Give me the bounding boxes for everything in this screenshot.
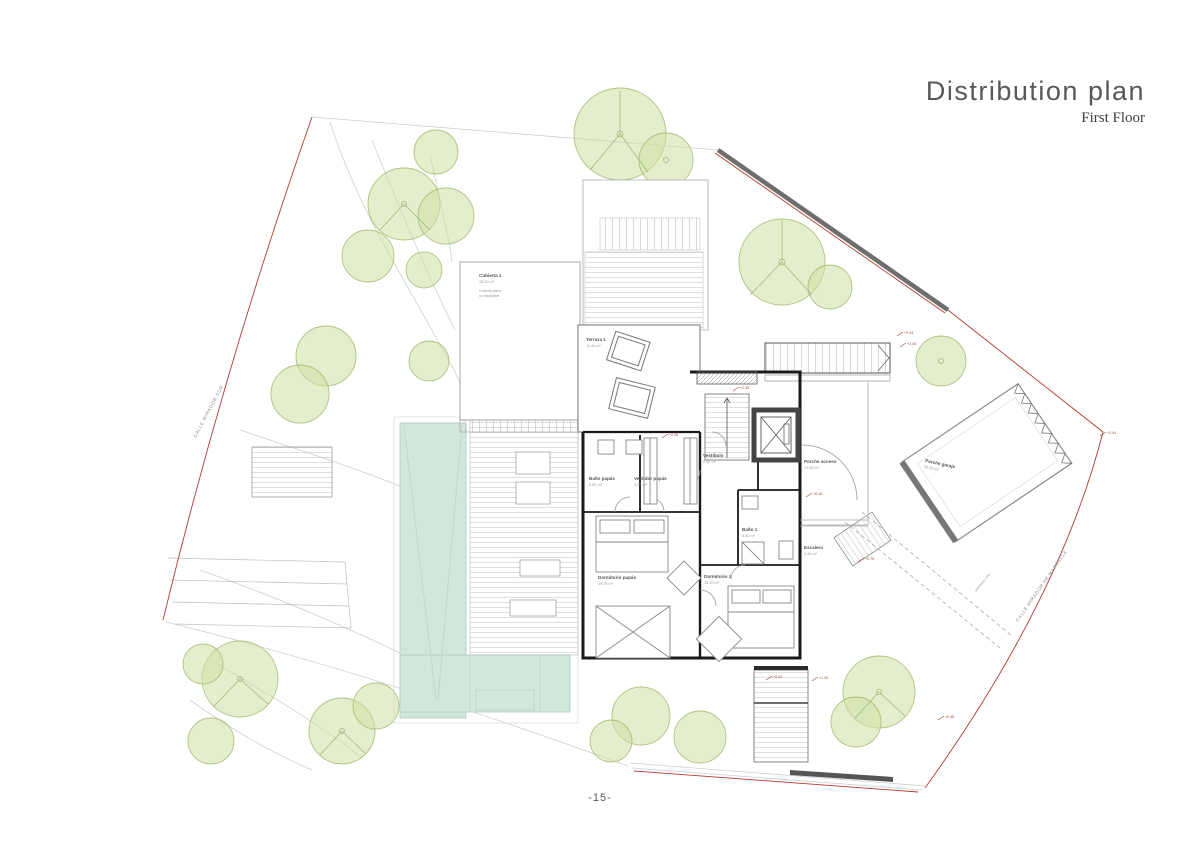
- level-marker: +2.44: [907, 342, 916, 346]
- room-area-cubierta: 45.20 m²: [479, 280, 495, 284]
- room-label-cubierta: Cubierta 1: [479, 273, 502, 278]
- room-area-dormitorio-papas: 19.75 m²: [598, 582, 614, 586]
- room-area-vestidor-papas: 4.30 m²: [634, 483, 648, 487]
- room-area-bano-1: 5.10 m²: [742, 534, 756, 538]
- floor-plan-drawing: +2.44 +2.44 +2.44 +2.35 +0.15 +2.44 +1.2…: [0, 0, 1200, 848]
- page-title: Distribution plan: [926, 76, 1145, 107]
- flat-roof-room: [460, 262, 580, 420]
- room-area-bano-papas: 6.85 m²: [589, 483, 603, 487]
- bottom-retaining-wall: [790, 770, 893, 782]
- level-marker: +2.35: [740, 386, 749, 390]
- room-label-dormitorio-1: Dormitorio 1: [704, 574, 732, 579]
- garage: [834, 384, 1072, 566]
- room-label-porche-acceso: Porche acceso: [804, 459, 837, 464]
- level-marker: +0.75: [865, 557, 874, 561]
- upper-terrace-block: [583, 180, 708, 330]
- left-terraces: [168, 558, 351, 628]
- level-marker: +0.15: [813, 492, 822, 496]
- interior-stairs: [705, 394, 749, 460]
- room-label-terraza-1: Terraza 1: [586, 337, 606, 342]
- room-area-vestibulo: 8.40 m²: [703, 460, 717, 464]
- level-marker: +2.35: [669, 433, 678, 437]
- page-number: -15-: [0, 792, 1200, 804]
- room-area-dormitorio-1: 15.20 m²: [704, 581, 720, 585]
- room-label-bano-1: Baño 1: [742, 527, 758, 532]
- level-marker: +1.20: [819, 676, 828, 680]
- room-area-escalera: 6.30 m²: [804, 552, 818, 556]
- exterior-stairs-bottom: [754, 666, 808, 762]
- slope-label: pendiente 16%: [974, 573, 992, 593]
- room-area-porche-acceso: 12.60 m²: [804, 466, 820, 470]
- room-label-dormitorio-papas: Dormitorio papás: [598, 575, 636, 580]
- lintel-hatch: [697, 372, 757, 384]
- room-label-escalera: Escalera: [804, 545, 823, 550]
- level-marker: +0.48: [945, 715, 954, 719]
- drawing-sheet: +2.44 +2.44 +2.44 +2.35 +0.15 +2.44 +1.2…: [0, 0, 1200, 848]
- left-exterior-stair: [252, 447, 332, 497]
- room-note-1: Cubierta plana: [479, 289, 501, 293]
- level-marker: +2.44: [1107, 431, 1116, 435]
- level-marker: +2.44: [773, 675, 782, 679]
- room-label-vestidor-papas: Vestidor papás: [634, 476, 667, 481]
- street-label-left: CALLE MIRADOR SUR: [192, 384, 224, 438]
- room-area-terraza-1: 11.40 m²: [586, 344, 601, 348]
- room-label-vestibulo: Vestíbulo: [703, 453, 724, 458]
- title-block: Distribution plan First Floor: [926, 76, 1145, 127]
- exterior-stairs-top: [765, 343, 890, 381]
- room-note-2: no transitable: [479, 294, 499, 298]
- porch-area: [800, 380, 868, 525]
- street-label-right: CALLE MIRADOR DE MARBELLA: [1015, 549, 1069, 623]
- roof-edge-strip: [460, 420, 580, 432]
- elevator: [754, 410, 798, 460]
- level-marker: +2.44: [904, 331, 913, 335]
- page-subtitle: First Floor: [926, 110, 1145, 127]
- room-label-bano-papas: Baño papás: [589, 476, 615, 481]
- pool-area: [394, 417, 578, 723]
